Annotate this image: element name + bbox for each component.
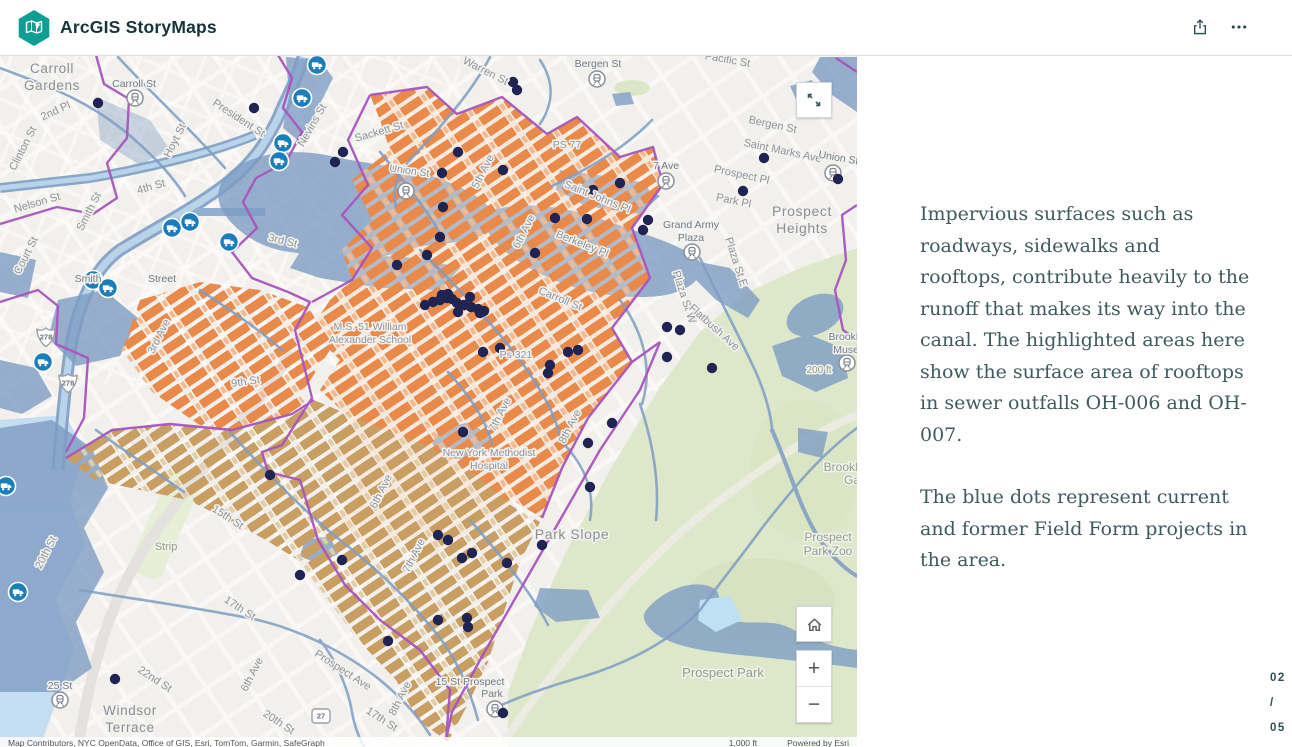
ellipsis-icon bbox=[1230, 16, 1248, 38]
story-map[interactable]: 27827827 CarrollGardensCarroll St2nd PlP… bbox=[0, 55, 857, 747]
pager-separator: / bbox=[1270, 691, 1292, 716]
home-icon bbox=[805, 615, 824, 634]
svg-text:Alexander School: Alexander School bbox=[329, 334, 411, 346]
svg-text:Ga: Ga bbox=[844, 473, 857, 487]
share-button[interactable] bbox=[1185, 12, 1215, 42]
svg-text:Ps 321: Ps 321 bbox=[500, 349, 533, 361]
svg-text:Park Zoo: Park Zoo bbox=[804, 544, 853, 558]
attribution-scale: 1,000 ft bbox=[729, 738, 757, 747]
more-options-button[interactable] bbox=[1224, 12, 1254, 42]
svg-text:Strip: Strip bbox=[155, 541, 178, 553]
map-attribution: Map Contributors, NYC OpenData, Office o… bbox=[0, 737, 857, 747]
svg-text:Prospect: Prospect bbox=[804, 530, 852, 544]
basemap-svg: 27827827 CarrollGardensCarroll St2nd PlP… bbox=[0, 55, 857, 747]
svg-text:Museu: Museu bbox=[833, 344, 857, 356]
svg-text:Prospect Park: Prospect Park bbox=[682, 665, 764, 680]
share-icon bbox=[1191, 16, 1209, 38]
svg-text:Brookly: Brookly bbox=[828, 331, 857, 343]
svg-text:278: 278 bbox=[62, 379, 75, 388]
pager-current: 02 bbox=[1270, 666, 1292, 691]
svg-text:Park Slope: Park Slope bbox=[535, 526, 609, 542]
svg-text:200 ft: 200 ft bbox=[806, 365, 831, 376]
svg-text:Brooklyn: Brooklyn bbox=[824, 460, 857, 474]
svg-text:Smith: Smith bbox=[75, 273, 102, 285]
storymaps-logo-icon bbox=[17, 10, 51, 46]
svg-text:PS 77: PS 77 bbox=[553, 139, 582, 151]
zoom-out-button[interactable]: − bbox=[797, 687, 831, 722]
svg-text:Prospect: Prospect bbox=[772, 203, 832, 219]
zoom-controls: + − bbox=[796, 650, 832, 723]
svg-text:Hospital: Hospital bbox=[470, 460, 508, 472]
svg-text:Gardens: Gardens bbox=[24, 78, 80, 93]
svg-text:15 St Prospect: 15 St Prospect bbox=[436, 676, 505, 688]
app-title: ArcGIS StoryMaps bbox=[60, 0, 217, 55]
story-text-panel: Impervious surfaces such as roadways, si… bbox=[857, 55, 1292, 747]
svg-text:25 St: 25 St bbox=[48, 680, 73, 692]
attribution-powered: Powered by Esri bbox=[787, 738, 849, 747]
svg-text:Park: Park bbox=[481, 688, 503, 700]
svg-text:Carroll St: Carroll St bbox=[112, 78, 156, 90]
svg-text:Bergen St: Bergen St bbox=[575, 58, 622, 70]
svg-text:7 Ave: 7 Ave bbox=[653, 160, 679, 172]
story-paragraph-2: The blue dots represent current and form… bbox=[920, 482, 1250, 577]
story-text: Impervious surfaces such as roadways, si… bbox=[920, 199, 1250, 608]
svg-text:27: 27 bbox=[317, 712, 325, 721]
pager-total: 05 bbox=[1270, 716, 1292, 741]
svg-text:New York Methodist: New York Methodist bbox=[443, 447, 536, 459]
svg-text:Terrace: Terrace bbox=[105, 720, 154, 735]
svg-text:Windsor: Windsor bbox=[103, 703, 157, 718]
attribution-sources: Map Contributors, NYC OpenData, Office o… bbox=[8, 738, 699, 747]
story-paragraph-1: Impervious surfaces such as roadways, si… bbox=[920, 199, 1250, 451]
slide-pager: 02 / 05 bbox=[1270, 666, 1292, 741]
zoom-in-button[interactable]: + bbox=[797, 651, 831, 686]
svg-text:Carroll: Carroll bbox=[30, 61, 74, 76]
app-header: ArcGIS StoryMaps bbox=[0, 0, 1292, 56]
svg-text:Plaza: Plaza bbox=[678, 232, 704, 244]
svg-text:Street: Street bbox=[148, 273, 176, 285]
svg-text:M.S. 51 William: M.S. 51 William bbox=[334, 321, 407, 333]
svg-text:Grand Army: Grand Army bbox=[663, 219, 720, 231]
svg-text:Heights: Heights bbox=[776, 220, 828, 236]
svg-text:278: 278 bbox=[40, 333, 53, 342]
expand-map-button[interactable] bbox=[796, 82, 832, 118]
home-extent-button[interactable] bbox=[796, 606, 832, 642]
expand-icon bbox=[805, 91, 823, 109]
